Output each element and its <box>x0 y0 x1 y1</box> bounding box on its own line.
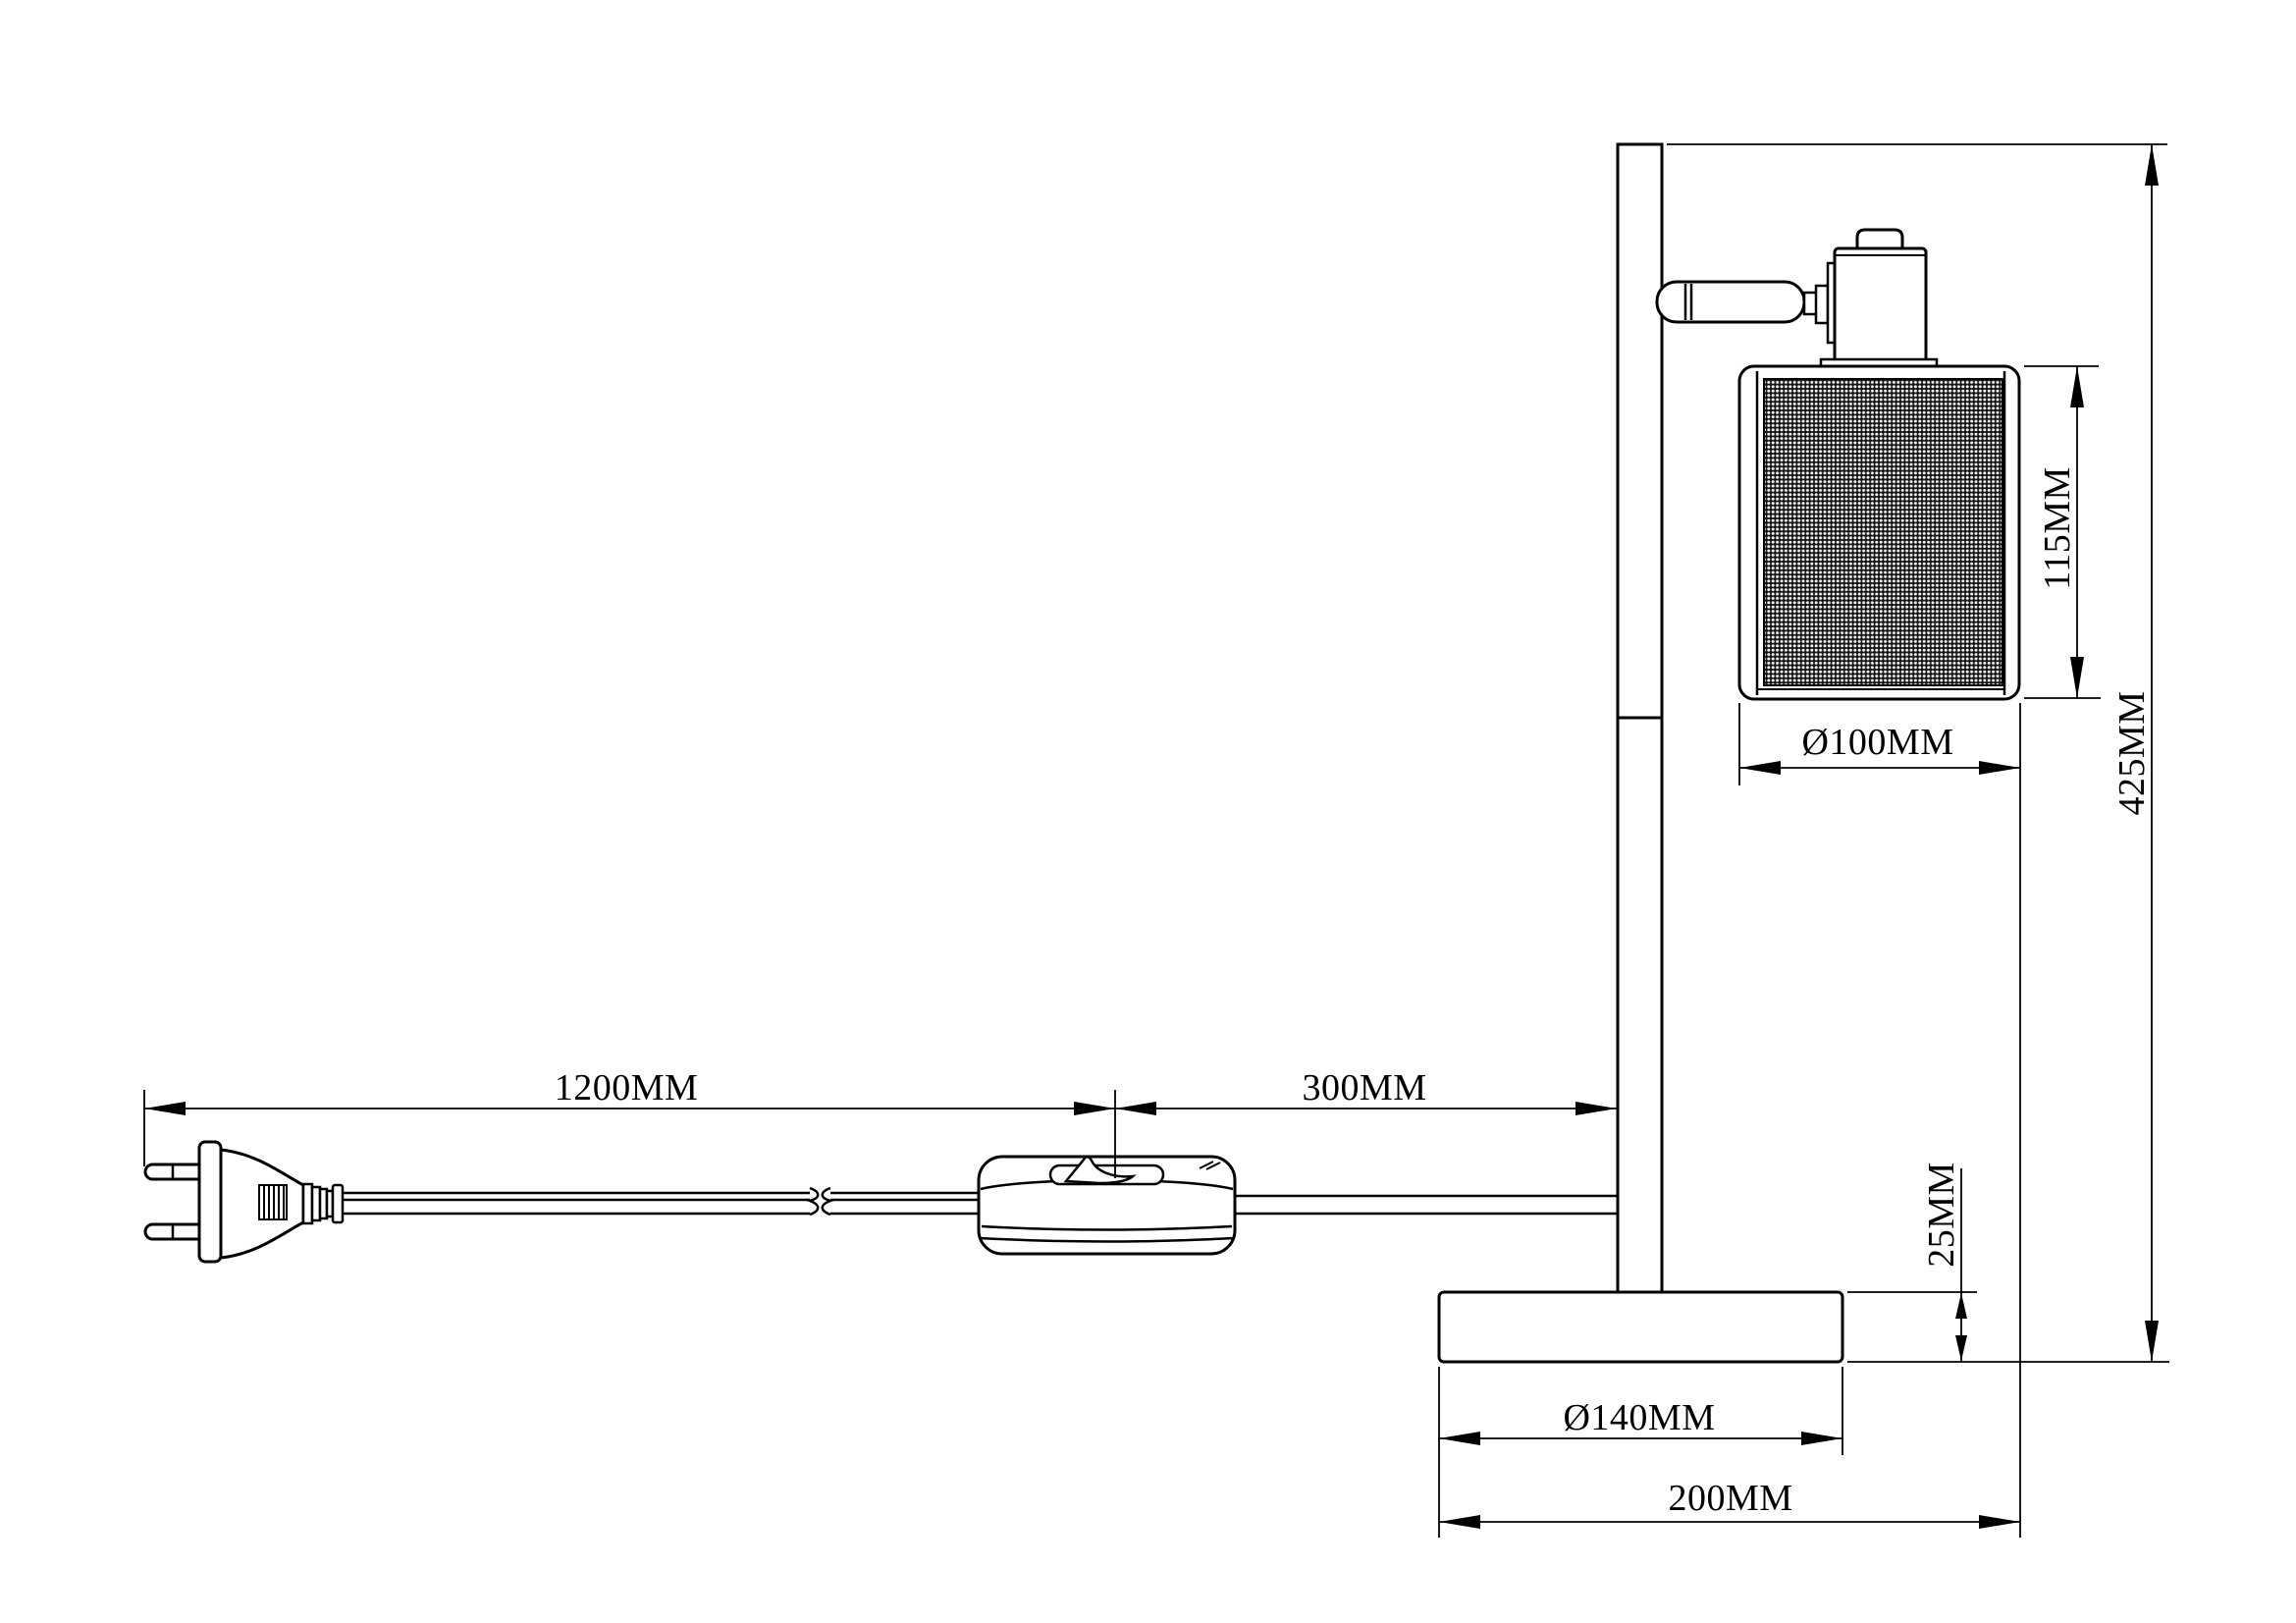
arrowhead <box>1575 1102 1617 1115</box>
shade-mesh <box>1764 379 2002 685</box>
power-plug <box>145 1142 343 1262</box>
dim-label-overall-height: 425MM <box>2111 690 2153 815</box>
housing-box <box>1835 248 1926 362</box>
lamp-post <box>1618 144 1662 1292</box>
arrowhead <box>2070 657 2084 698</box>
dim-overall-depth: 200MM <box>1439 1478 2020 1529</box>
socket-housing <box>1821 230 1937 368</box>
lamp-base <box>1439 1292 1842 1362</box>
arrowhead <box>2145 1321 2159 1362</box>
arrowhead <box>1801 1432 1842 1445</box>
arrowhead <box>1739 761 1781 775</box>
dim-label-switch-to-lamp: 300MM <box>1302 1067 1426 1109</box>
plug-grip-ribs <box>259 1185 287 1219</box>
plug-pin-top <box>145 1164 206 1179</box>
housing-cap <box>1857 230 1902 249</box>
cord-segment-break-to-switch <box>830 1193 979 1214</box>
dim-label-base-diameter: Ø140MM <box>1563 1397 1715 1438</box>
arrowhead <box>2145 144 2159 186</box>
lamp-shade <box>1739 366 2019 699</box>
lamp-arm <box>1657 263 1835 343</box>
arrowhead <box>1979 761 2020 775</box>
dim-switch-to-lamp: 300MM <box>1115 1067 1617 1115</box>
arrowhead <box>144 1102 186 1115</box>
dim-label-shade-height: 115MM <box>2037 466 2078 590</box>
dim-label-cord-length: 1200MM <box>555 1067 699 1109</box>
cord-break-right <box>823 1188 830 1215</box>
arrowhead <box>1439 1515 1480 1529</box>
dim-label-overall-depth: 200MM <box>1668 1478 1792 1519</box>
arrowhead <box>1979 1515 2020 1529</box>
dim-label-shade-diameter: Ø100MM <box>1801 722 1953 763</box>
dim-label-base-thickness: 25MM <box>1921 1162 1962 1268</box>
dim-base-thickness: 25MM <box>1847 1162 1977 1362</box>
dim-shade-diameter: Ø100MM <box>1739 703 2020 1538</box>
inline-switch <box>979 1157 1235 1254</box>
arrowhead <box>1955 1335 1967 1361</box>
arrowhead <box>1439 1432 1480 1445</box>
plug-face <box>199 1142 221 1262</box>
arrowhead <box>1115 1102 1156 1115</box>
cord-segment-plug-to-break <box>343 1193 810 1214</box>
plug-strain-relief <box>303 1184 343 1223</box>
plug-cord-exit-cap <box>333 1185 343 1222</box>
arrowhead <box>1074 1102 1115 1115</box>
dim-cord-length: 1200MM <box>144 1067 1115 1178</box>
lamp-dimension-drawing: 1200MM 300MM 425MM 115MM <box>0 0 2296 1623</box>
cord-break-left <box>810 1188 818 1215</box>
arrowhead <box>2070 366 2084 407</box>
dim-shade-height: 115MM <box>2024 366 2101 698</box>
arm-body <box>1657 282 1804 322</box>
plug-pin-bottom <box>145 1224 206 1239</box>
technical-drawing-canvas: 1200MM 300MM 425MM 115MM <box>0 0 2296 1623</box>
cord-segment-switch-to-lamp <box>1235 1196 1618 1214</box>
arm-knuckle <box>1816 286 1828 323</box>
arrowhead <box>1955 1293 1967 1319</box>
